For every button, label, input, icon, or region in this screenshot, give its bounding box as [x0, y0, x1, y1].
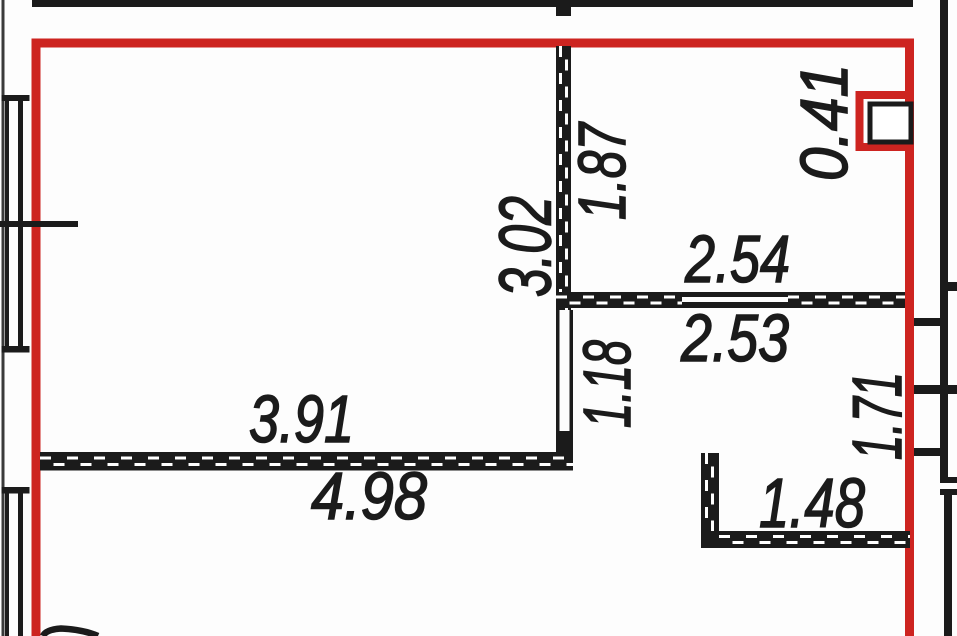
svg-text:4.98: 4.98	[311, 459, 427, 534]
svg-text:0.41: 0.41	[787, 64, 862, 181]
svg-text:1.48: 1.48	[759, 464, 865, 542]
svg-text:2.54: 2.54	[684, 222, 790, 297]
svg-text:2.53: 2.53	[680, 301, 789, 376]
svg-text:3.02: 3.02	[486, 196, 567, 297]
svg-text:1.87: 1.87	[565, 121, 640, 220]
svg-text:1.71: 1.71	[838, 372, 916, 460]
svg-text:1.18: 1.18	[570, 340, 645, 428]
svg-text:3.91: 3.91	[249, 382, 354, 457]
